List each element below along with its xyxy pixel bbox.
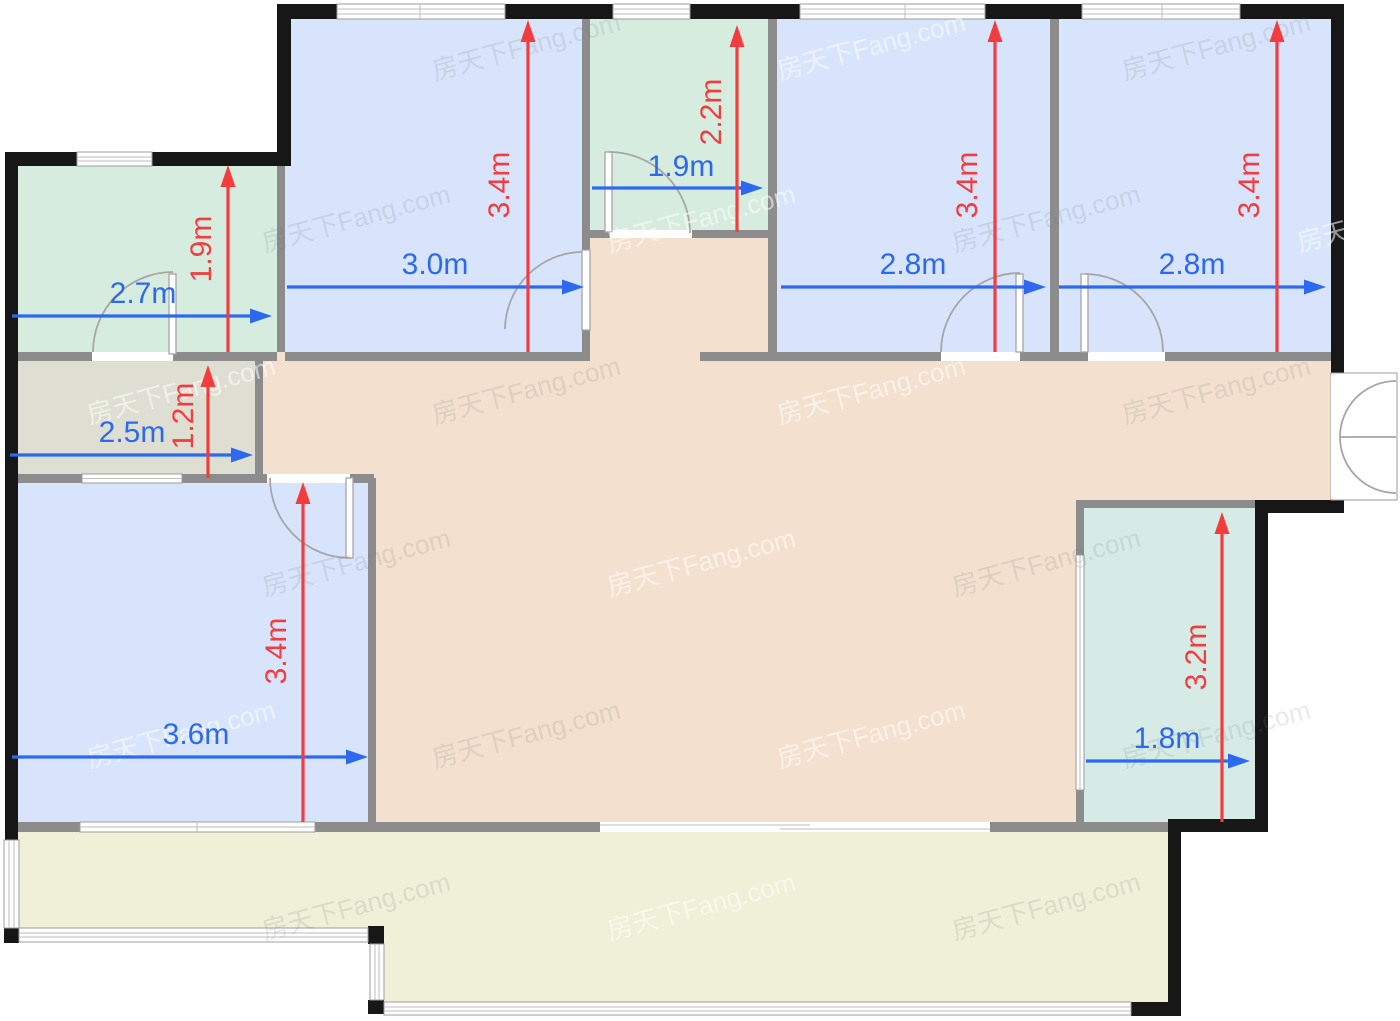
balcony-window-left	[4, 840, 19, 928]
dim-label: 3.4m	[260, 618, 293, 685]
floor-plan-canvas: 房天下Fang.com房天下Fang.com房天下Fang.com房天下Fang…	[0, 0, 1400, 1021]
dim-label: 1.9m	[648, 150, 715, 183]
window-bottom-right-room	[1076, 555, 1084, 790]
dim-label: 3.2m	[1180, 624, 1213, 691]
dim-label: 2.5m	[99, 416, 166, 449]
dim-label: 1.8m	[1134, 722, 1201, 755]
watermark-text: 房天下Fang.com	[84, 7, 279, 86]
window-left-small-room	[82, 474, 182, 483]
room-bottom-left-floor	[12, 483, 368, 832]
dim-label: 3.4m	[483, 152, 516, 219]
watermark-text: 房天下Fang.com	[1294, 867, 1400, 946]
watermark-text: 房天下Fang.com	[1294, 523, 1400, 602]
dim-label: 2.8m	[880, 248, 947, 281]
sliding-door-balcony	[600, 822, 990, 832]
balcony-window-bottom	[384, 1002, 1131, 1015]
dim-label: 2.2m	[695, 79, 728, 146]
dim-label: 3.4m	[951, 152, 984, 219]
dim-label: 3.6m	[163, 718, 230, 751]
window-top-4	[1082, 4, 1240, 19]
window-top-left-room	[77, 152, 152, 166]
balcony-window-step	[370, 944, 384, 1000]
floor-plan-page: 房天下Fang.com房天下Fang.com房天下Fang.com房天下Fang…	[0, 0, 1400, 1021]
dim-label: 1.2m	[167, 383, 200, 450]
dim-label: 3.4m	[1233, 152, 1266, 219]
room-top-left-floor	[12, 160, 277, 360]
french-door-right	[1331, 373, 1397, 500]
dim-label: 3.0m	[402, 248, 469, 281]
dim-label: 1.9m	[185, 216, 218, 283]
window-bottom-left-room	[80, 822, 315, 832]
dim-label: 2.7m	[110, 277, 177, 310]
window-top-1	[337, 4, 505, 19]
dim-label: 2.8m	[1159, 248, 1226, 281]
window-top-2	[613, 4, 690, 19]
